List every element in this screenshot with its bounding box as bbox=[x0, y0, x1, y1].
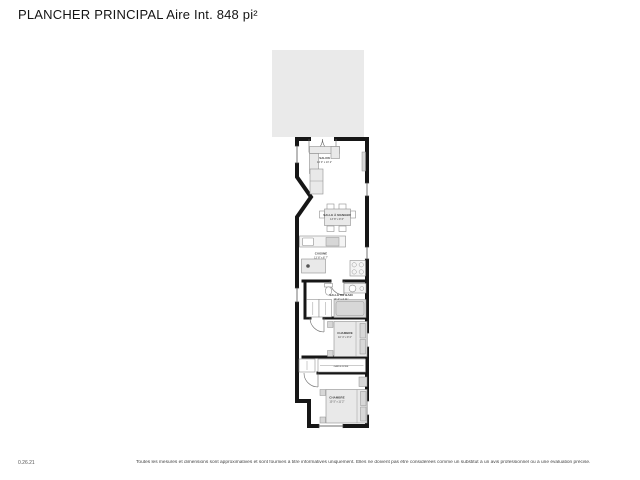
tv-unit-icon bbox=[362, 152, 366, 171]
window-icon bbox=[365, 183, 369, 196]
closet-hangers-icon bbox=[307, 300, 332, 318]
room-label-garde-robe: GARDE-ROBE bbox=[334, 365, 349, 368]
bed-icon bbox=[328, 322, 368, 357]
dresser-icon bbox=[359, 377, 367, 387]
deck-area bbox=[272, 50, 364, 137]
room-dims-chambre-2: 10' 5" x 11' 2" bbox=[330, 401, 345, 404]
page-title: PLANCHER PRINCIPAL Aire Int. 848 pi² bbox=[18, 7, 258, 22]
kitchen-sink-icon bbox=[303, 238, 314, 246]
room-label-chambre-2: CHAMBRE bbox=[329, 396, 344, 400]
window-icon bbox=[295, 288, 299, 302]
island-icon bbox=[302, 259, 326, 273]
wardrobe-icon bbox=[299, 359, 366, 372]
room-dims-salon: 14' 0" x 10' 2" bbox=[317, 161, 332, 164]
window-icon bbox=[319, 424, 343, 428]
room-dims-salle-de-bain: 10' 4" x 4' 11" bbox=[334, 298, 349, 301]
window-icon bbox=[295, 146, 299, 163]
footer-disclaimer: Toutes les mesures et dimensions sont ap… bbox=[136, 460, 632, 465]
nightstand-icon bbox=[328, 351, 334, 357]
room-label-salle-de-bain: SALLE DE BAIN bbox=[329, 293, 352, 297]
floor-plan: SALON 14' 0" x 10' 2" SALLE À MANGER 13'… bbox=[288, 130, 376, 435]
nightstand-icon bbox=[320, 417, 326, 423]
bathtub-icon bbox=[334, 300, 366, 318]
range-icon bbox=[326, 238, 339, 247]
vanity-sink-icon bbox=[344, 284, 366, 294]
room-dims-cuisine: 13' 8" x 8' 7" bbox=[314, 257, 328, 260]
window-icon bbox=[365, 247, 369, 259]
kitchen-counter-icon bbox=[300, 236, 346, 247]
room-label-salon: SALON bbox=[319, 156, 330, 160]
nightstand-icon bbox=[328, 322, 334, 328]
room-label-salle-a-manger: SALLE À MANGER bbox=[323, 212, 351, 217]
cooktop-icon bbox=[350, 261, 366, 277]
footer-version: 0.26.21 bbox=[18, 460, 35, 466]
cabinet-icon bbox=[310, 169, 323, 194]
room-label-chambre-1: CHAMBRE bbox=[337, 331, 352, 335]
room-dims-chambre-1: 10' 4" x 9' 0" bbox=[338, 336, 352, 339]
room-dims-salle-a-manger: 13' 8" x 9' 6" bbox=[330, 218, 344, 221]
room-label-cuisine: CUISINE bbox=[315, 252, 327, 256]
nightstand-icon bbox=[320, 390, 326, 396]
